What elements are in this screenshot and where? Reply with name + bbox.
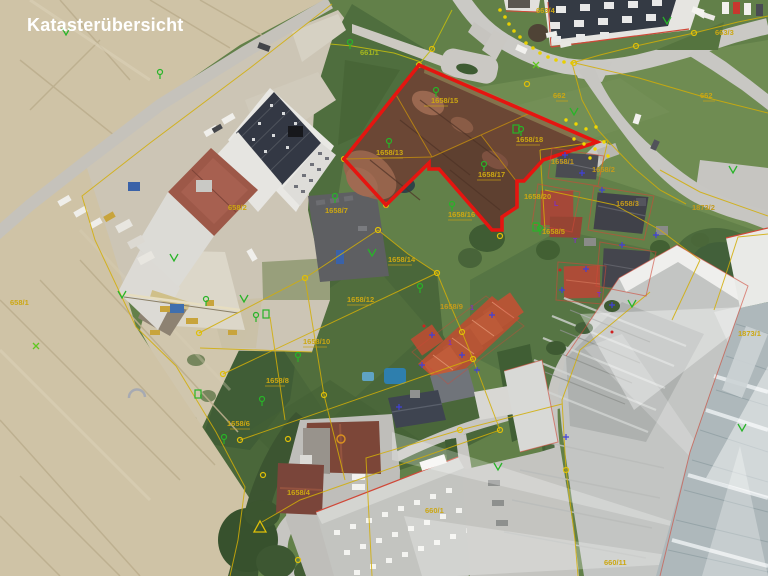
svg-text:1658/15: 1658/15 [431,96,458,105]
svg-text:1658/7: 1658/7 [325,206,348,215]
svg-text:663/3: 663/3 [715,28,734,37]
svg-text:1658/4: 1658/4 [287,488,311,497]
svg-text:1658/17: 1658/17 [478,170,505,179]
svg-text:1658/18: 1658/18 [516,135,543,144]
svg-text:L: L [554,201,559,208]
svg-text:1658/16: 1658/16 [448,210,475,219]
svg-text:1873/2: 1873/2 [692,203,715,212]
svg-text:662: 662 [553,91,566,100]
svg-text:658/2: 658/2 [228,203,247,212]
svg-text:1658/5: 1658/5 [542,227,565,236]
svg-text:661/1: 661/1 [360,48,379,57]
svg-text:660/11: 660/11 [604,558,627,567]
svg-text:1658/3: 1658/3 [616,199,639,208]
svg-text:1658/10: 1658/10 [303,337,330,346]
svg-text:1658/14: 1658/14 [388,255,416,264]
svg-text:658/1: 658/1 [10,298,29,307]
svg-text:1: 1 [470,305,474,312]
svg-text:660/1: 660/1 [425,506,444,515]
svg-text:1658/2: 1658/2 [592,165,615,174]
svg-text:1658/13: 1658/13 [376,148,403,157]
svg-text:1873/1: 1873/1 [738,329,761,338]
svg-text:1658/20: 1658/20 [524,192,551,201]
svg-text:1658/8: 1658/8 [266,376,289,385]
svg-text:1: 1 [448,340,452,347]
svg-text:T: T [573,238,578,245]
svg-text:1658/1: 1658/1 [551,157,574,166]
svg-text:663/4: 663/4 [536,6,556,15]
svg-text:1658/12: 1658/12 [347,295,374,304]
svg-text:1658/9: 1658/9 [440,302,463,311]
svg-text:T: T [597,292,602,299]
svg-text:1658/6: 1658/6 [227,419,250,428]
svg-text:662: 662 [700,91,713,100]
